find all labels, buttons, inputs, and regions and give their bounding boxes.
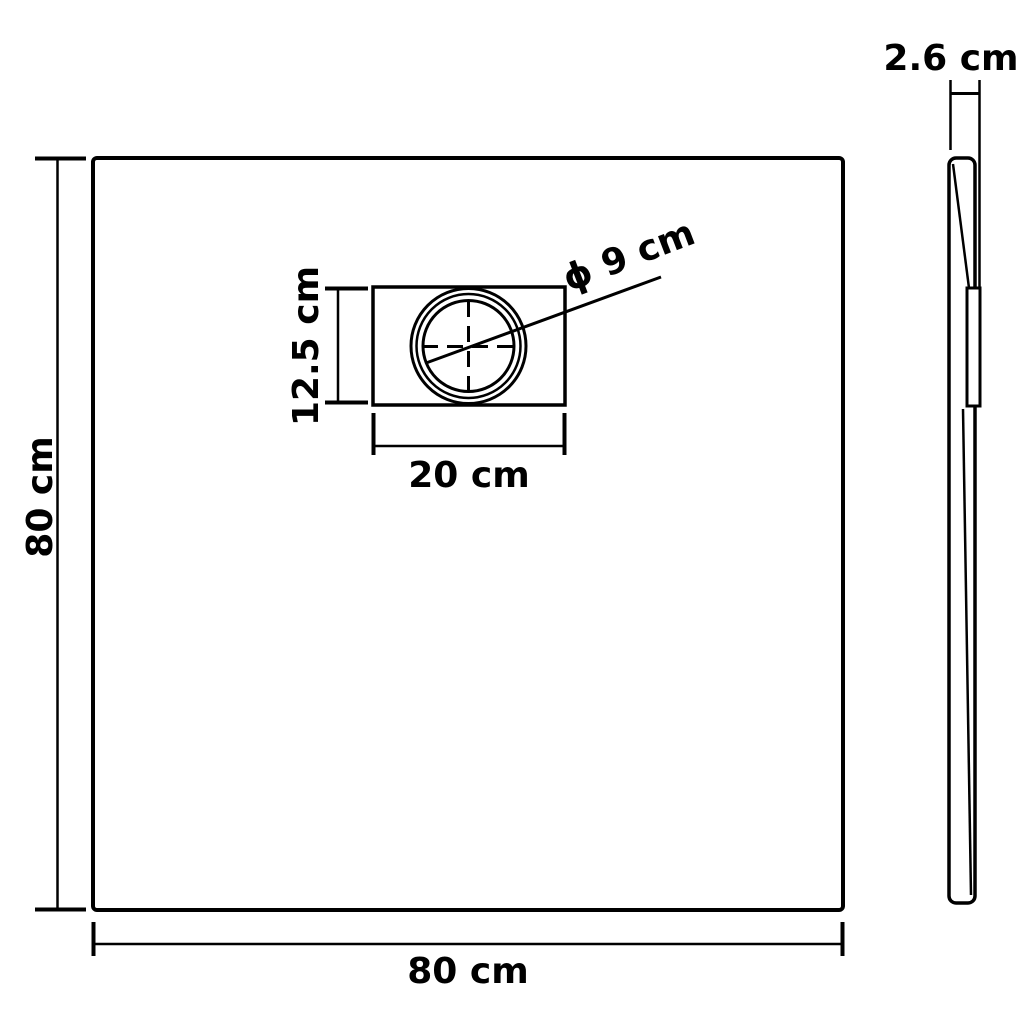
profile-surface-slope-lower (963, 409, 971, 895)
side-view: 2.6 cm (883, 38, 1018, 903)
thickness-label: 2.6 cm (883, 38, 1018, 79)
plan-view (93, 158, 843, 910)
diagram-canvas: 80 cm 80 cm 12.5 cm 20 cm ϕ 9 cm (0, 0, 1024, 1024)
profile-drain-bump (967, 288, 980, 406)
tray-width-label: 80 cm (407, 951, 528, 992)
tray-outline (93, 158, 843, 910)
dimension-drain-box-width: 20 cm (374, 413, 565, 496)
dimension-tray-width: 80 cm (94, 922, 843, 992)
drain-box-width-label: 20 cm (408, 455, 529, 496)
dimension-tray-height: 80 cm (20, 159, 86, 910)
shower-tray-dimension-diagram: 80 cm 80 cm 12.5 cm 20 cm ϕ 9 cm (0, 0, 1024, 1024)
profile-outline (949, 158, 975, 903)
profile-surface-slope-upper (953, 164, 969, 288)
drain-diameter-label: ϕ 9 cm (557, 212, 700, 300)
drain-box-height-label: 12.5 cm (286, 266, 327, 426)
dimension-drain-box-height: 12.5 cm (286, 266, 368, 426)
tray-height-label: 80 cm (20, 436, 61, 557)
